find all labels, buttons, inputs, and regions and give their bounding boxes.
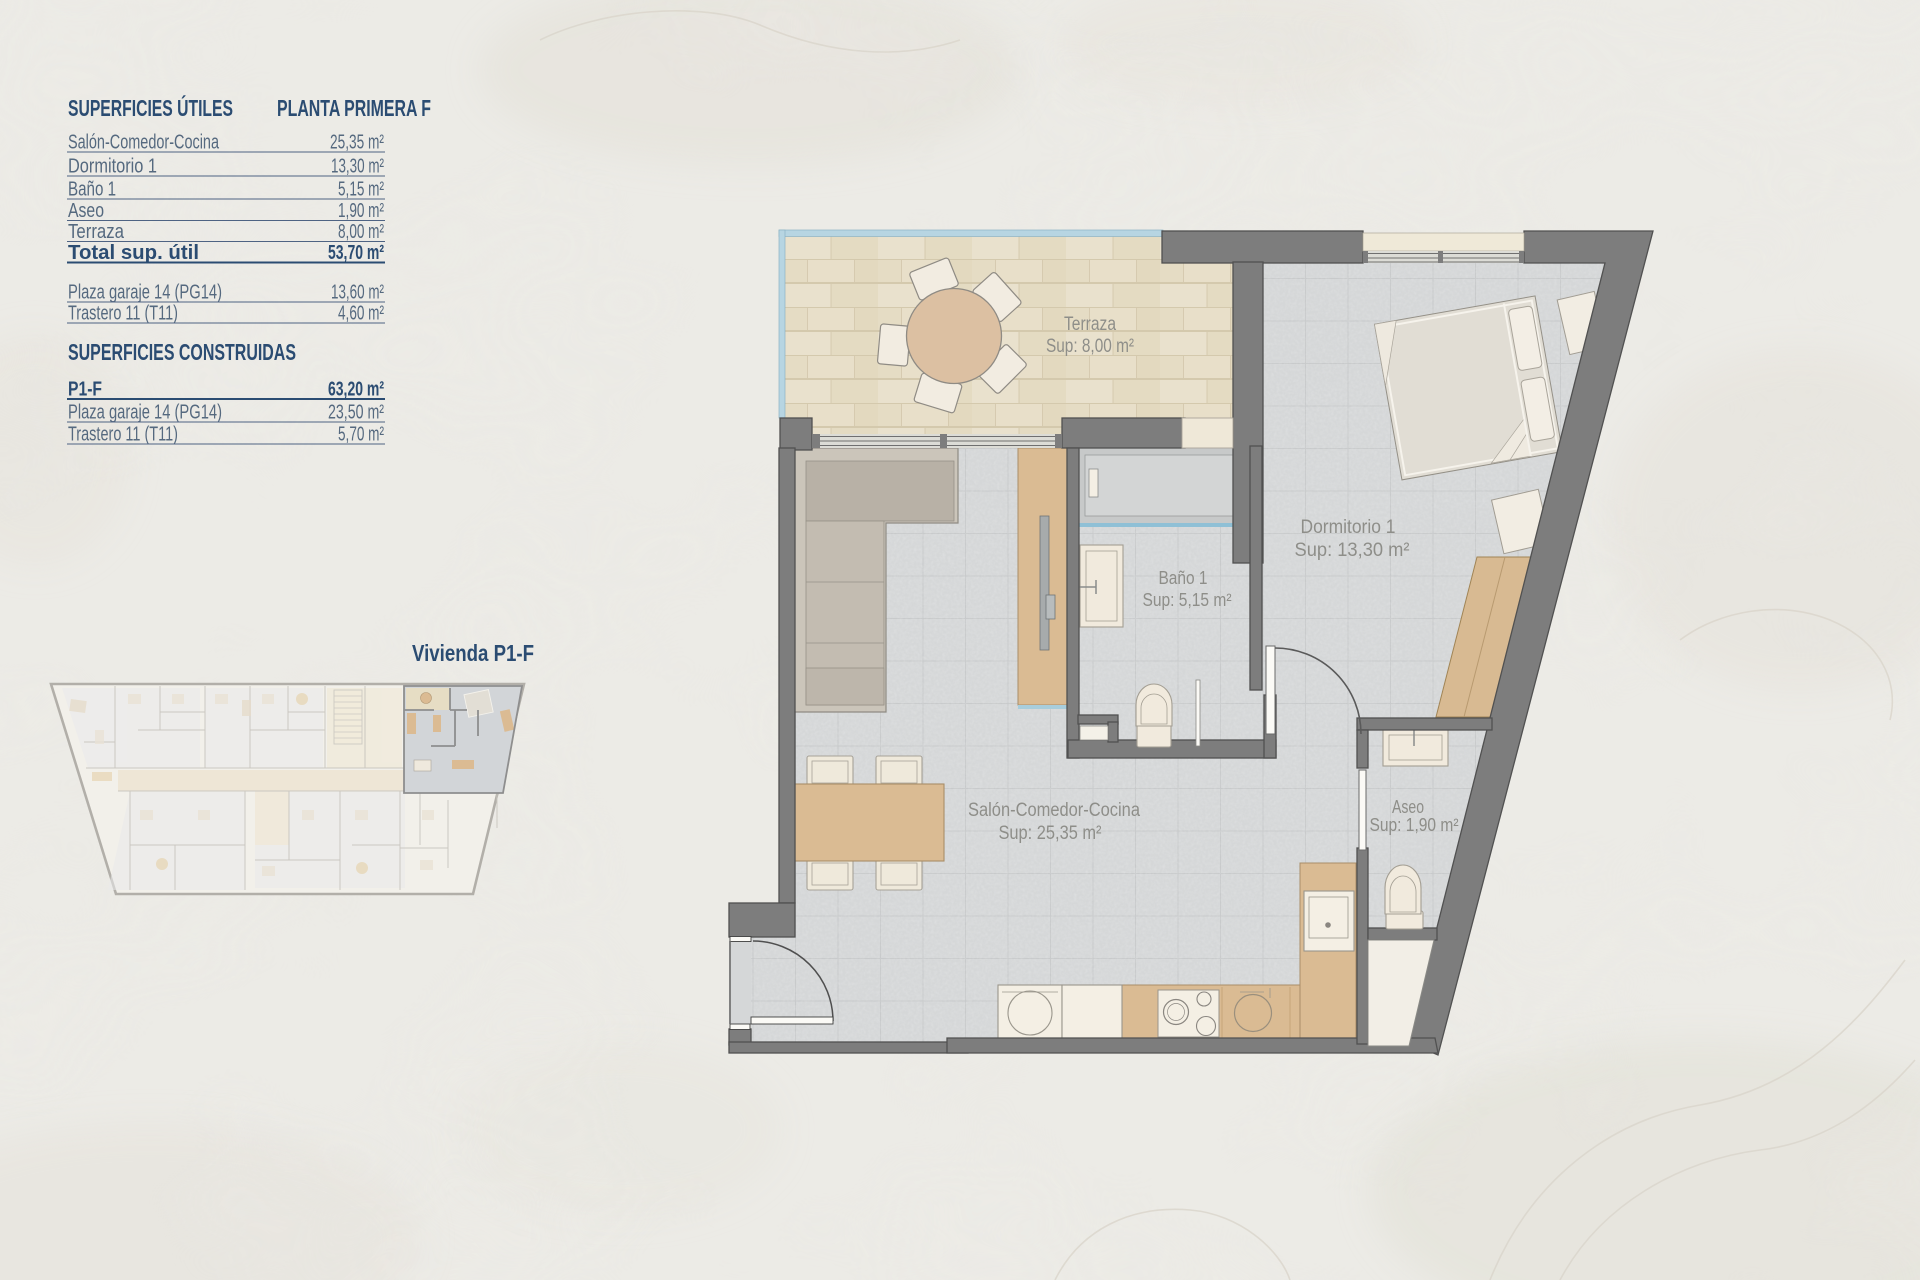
svg-text:Salón-Comedor-Cocina: Salón-Comedor-Cocina	[968, 800, 1140, 821]
svg-text:Vivienda P1-F: Vivienda P1-F	[412, 640, 534, 666]
svg-text:8,00 m²: 8,00 m²	[338, 221, 384, 243]
svg-text:Dormitorio 1: Dormitorio 1	[68, 156, 157, 178]
svg-text:Sup: 25,35 m²: Sup: 25,35 m²	[999, 823, 1102, 844]
svg-text:Aseo: Aseo	[68, 200, 104, 222]
svg-text:Sup: 1,90 m²: Sup: 1,90 m²	[1370, 815, 1459, 835]
svg-text:13,60 m²: 13,60 m²	[331, 282, 384, 304]
svg-text:Sup: 13,30 m²: Sup: 13,30 m²	[1295, 540, 1410, 561]
svg-text:Aseo: Aseo	[1392, 797, 1424, 817]
svg-text:Salón-Comedor-Cocina: Salón-Comedor-Cocina	[68, 132, 220, 154]
svg-text:53,70 m²: 53,70 m²	[328, 242, 384, 264]
svg-text:1,90 m²: 1,90 m²	[338, 200, 384, 222]
svg-text:Terraza: Terraza	[68, 221, 125, 243]
svg-text:25,35 m²: 25,35 m²	[330, 132, 384, 154]
svg-text:Plaza garaje 14 (PG14): Plaza garaje 14 (PG14)	[68, 402, 222, 424]
svg-text:Dormitorio 1: Dormitorio 1	[1301, 517, 1396, 538]
svg-text:SUPERFICIES ÚTILES: SUPERFICIES ÚTILES	[68, 94, 233, 121]
svg-text:5,15 m²: 5,15 m²	[338, 179, 384, 201]
svg-text:Baño 1: Baño 1	[1159, 568, 1208, 588]
svg-text:Baño 1: Baño 1	[68, 179, 116, 201]
svg-text:23,50 m²: 23,50 m²	[328, 402, 384, 424]
svg-text:Total sup. útil: Total sup. útil	[68, 242, 199, 264]
svg-text:5,70 m²: 5,70 m²	[338, 424, 384, 446]
svg-text:Trastero 11 (T11): Trastero 11 (T11)	[68, 424, 178, 446]
svg-text:Sup: 5,15 m²: Sup: 5,15 m²	[1143, 590, 1232, 610]
svg-text:Plaza garaje 14 (PG14): Plaza garaje 14 (PG14)	[68, 282, 222, 304]
svg-text:4,60 m²: 4,60 m²	[338, 303, 384, 325]
svg-text:Terraza: Terraza	[1064, 314, 1116, 335]
svg-text:P1-F: P1-F	[68, 379, 102, 401]
svg-text:Trastero 11 (T11): Trastero 11 (T11)	[68, 303, 178, 325]
svg-text:63,20 m²: 63,20 m²	[328, 379, 384, 401]
svg-text:SUPERFICIES CONSTRUIDAS: SUPERFICIES CONSTRUIDAS	[68, 339, 296, 365]
svg-text:Sup: 8,00 m²: Sup: 8,00 m²	[1046, 336, 1134, 357]
svg-text:13,30 m²: 13,30 m²	[331, 156, 384, 178]
svg-text:PLANTA PRIMERA F: PLANTA PRIMERA F	[277, 95, 431, 121]
